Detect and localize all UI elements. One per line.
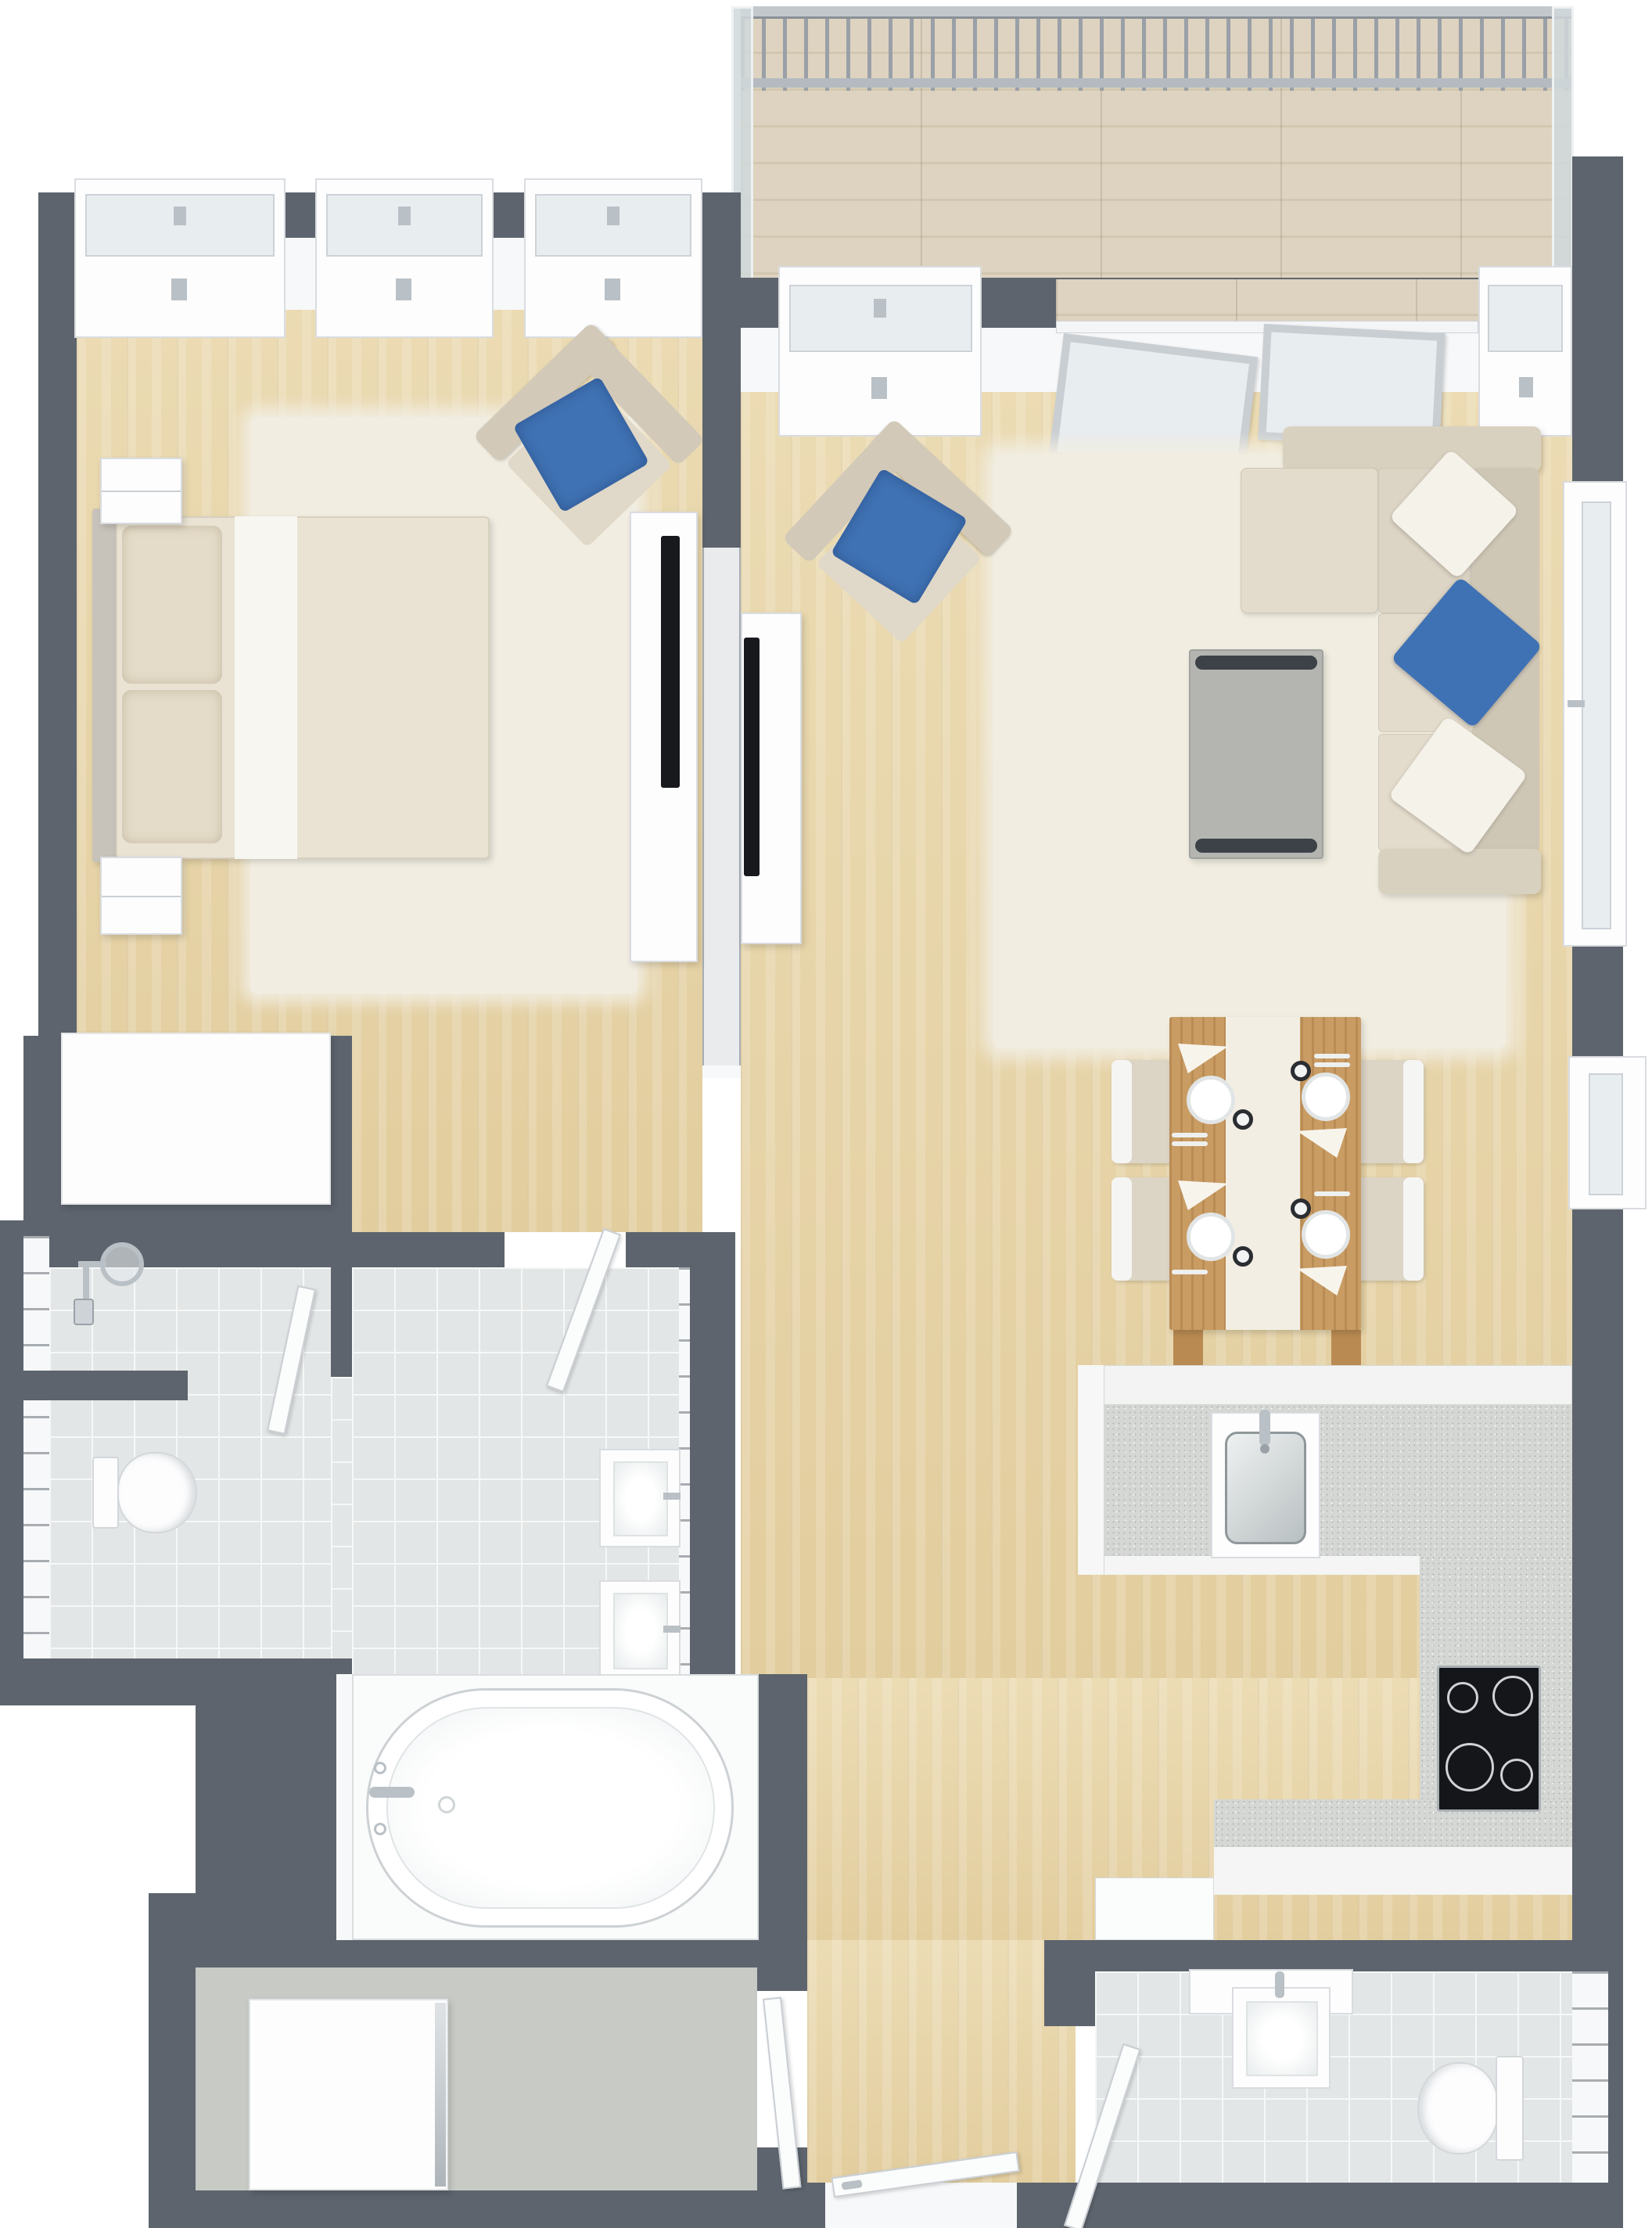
door-handle-icon (1568, 700, 1585, 707)
tub-left-wall-face (336, 1674, 352, 1940)
cutlery (1172, 1133, 1208, 1137)
faucet-icon (663, 1493, 681, 1500)
divider-wall-white (702, 548, 741, 1078)
window-handle-icon (607, 207, 619, 225)
basin (613, 1461, 668, 1536)
basin (1246, 2001, 1318, 2076)
tub-drain-icon (438, 1796, 455, 1813)
tub-left-wall (196, 1705, 336, 1940)
laundry-left-wall (149, 1893, 196, 2228)
drawer-line (102, 896, 181, 897)
chair-back (1112, 1177, 1132, 1281)
wc-left-wall-face (23, 1236, 49, 1658)
bathroom2-right-wall-face (1572, 1971, 1608, 2183)
cup (1233, 1246, 1253, 1267)
sofa-armrest-bottom (1378, 849, 1541, 894)
wardrobe-bottom-wall (23, 1205, 352, 1236)
window-handle-icon (171, 278, 187, 300)
dining-table-leg (1173, 1330, 1203, 1366)
laundry-hall-wall-upper (757, 1705, 807, 1991)
window-glass (535, 194, 691, 257)
divider-wall-dark (702, 328, 741, 548)
bed-pillow-top (122, 526, 222, 684)
bath-sink-1 (599, 1449, 681, 1547)
faucet-icon (1275, 1971, 1284, 1998)
cup (1233, 1109, 1253, 1130)
window-glass (1589, 1073, 1623, 1195)
bedroom-left-wall (38, 192, 77, 1036)
window-handle-icon (398, 207, 411, 225)
coffee-table (1189, 649, 1323, 859)
bottom-wall-right-of-door (1017, 2183, 1623, 2228)
drawer-line (102, 491, 181, 492)
bed-pillow-bottom (122, 690, 222, 843)
table-runner (1226, 1017, 1300, 1330)
dining-table-leg (1331, 1330, 1361, 1366)
living-window-left (778, 266, 982, 437)
living-window-right (1478, 266, 1572, 437)
bath-hall-wall-face (679, 1267, 690, 1674)
tub-knob-icon (374, 1762, 386, 1774)
bathroom-connector-floor (331, 1377, 352, 1658)
shower-head-icon (100, 1242, 144, 1286)
bath-hall-wall (688, 1267, 735, 1674)
window-glass (789, 285, 972, 352)
plate (1302, 1073, 1350, 1121)
bedroom-window-1 (74, 178, 286, 338)
kitchen-island-counter (1078, 1404, 1572, 1555)
pergola-beam-top (741, 6, 1572, 19)
living-side-window-door (1563, 481, 1627, 947)
bedroom-window-3 (524, 178, 702, 338)
kitchen-bottom-cabinet-fronts (1214, 1846, 1572, 1895)
laundry-top-wall (196, 1940, 807, 1967)
burner-ring (1447, 1682, 1478, 1713)
burner-ring (1492, 1676, 1533, 1716)
wc-left-exterior-wall (0, 1220, 23, 1705)
door-handle-icon (842, 2179, 863, 2190)
window-handle-icon (396, 278, 411, 300)
bed-headboard (92, 508, 116, 862)
bath-sink-2 (599, 1580, 681, 1680)
basin (613, 1593, 668, 1669)
toilet2-bowl (1417, 2062, 1499, 2154)
washer-chrome-edge (435, 2003, 446, 2187)
bathroom-top-wall-right (626, 1232, 735, 1267)
tub-faucet-icon (369, 1787, 415, 1798)
pergola-beam-bottom (741, 78, 1572, 88)
window-glass (326, 194, 483, 257)
kitchen-end-cabinet (1095, 1878, 1214, 1940)
bathroom2-top-wall (1044, 1940, 1623, 1971)
plate (1187, 1076, 1235, 1124)
toilet2-tank (1496, 2056, 1524, 2161)
window-handle-icon (605, 278, 620, 300)
bathtub-inner-rim (386, 1707, 715, 1909)
corner-mass-below-wc (0, 1658, 352, 1705)
shower-wc-stub-wall (0, 1371, 188, 1400)
balcony-railing-right (1552, 6, 1574, 288)
bed-sheet-band (235, 516, 297, 859)
window-handle-icon (1519, 377, 1533, 397)
chair-back (1112, 1060, 1132, 1163)
kitchen-island-end-cap (1078, 1365, 1104, 1575)
hall-tv (744, 638, 760, 876)
burner-ring (1500, 1759, 1533, 1791)
cup (1291, 1061, 1311, 1081)
plate (1302, 1210, 1350, 1259)
toilet-tank (92, 1457, 119, 1529)
cutlery (1314, 1191, 1350, 1196)
bathroom2-sink (1232, 1987, 1331, 2089)
floor-plan-canvas (0, 0, 1652, 2228)
window-handle-icon (871, 377, 887, 399)
divider-wall-end-cap (702, 1065, 741, 1078)
kitchen-faucet-spout (1260, 1444, 1270, 1454)
chair-back (1403, 1177, 1424, 1281)
nightstand-top (100, 458, 182, 524)
cutlery (1172, 1141, 1208, 1146)
shower-divider-wall (331, 1267, 352, 1377)
window-glass (1488, 285, 1563, 352)
plate (1187, 1213, 1235, 1261)
sofa-armrest-top (1283, 426, 1541, 472)
coffee-table-bar-bottom (1195, 839, 1317, 853)
kitchen-island-top-band (1078, 1365, 1572, 1406)
sofa-chaise (1241, 468, 1378, 613)
faucet-icon (663, 1626, 681, 1633)
hall-bottom-floor (807, 1940, 1076, 2183)
cutlery (1314, 1062, 1350, 1067)
nightstand-bottom (100, 857, 182, 935)
burner-ring (1445, 1743, 1494, 1791)
laundry-bottom-wall (149, 2190, 810, 2228)
dining-side-window (1568, 1056, 1647, 1209)
cup (1291, 1198, 1311, 1219)
tub-knob-icon (374, 1823, 386, 1835)
window-glass (1582, 501, 1611, 929)
washing-machine (249, 1999, 448, 2190)
cutlery (1172, 1270, 1208, 1274)
coffee-table-bar-top (1195, 656, 1317, 670)
bedroom-window-2 (315, 178, 494, 338)
shower-mixer-icon (74, 1299, 94, 1325)
window-handle-icon (174, 207, 186, 225)
window-handle-icon (874, 299, 886, 318)
cutlery (1314, 1054, 1350, 1058)
bottom-wall-left-of-door (807, 2183, 825, 2228)
bedroom-tv (661, 536, 680, 788)
window-glass (85, 194, 275, 257)
kitchen-faucet-icon (1259, 1410, 1270, 1446)
chair-back (1403, 1060, 1424, 1163)
bedroom-wardrobe (61, 1033, 331, 1205)
toilet-bowl (117, 1452, 197, 1533)
bathroom2-left-wall-stub (1044, 1971, 1095, 2026)
